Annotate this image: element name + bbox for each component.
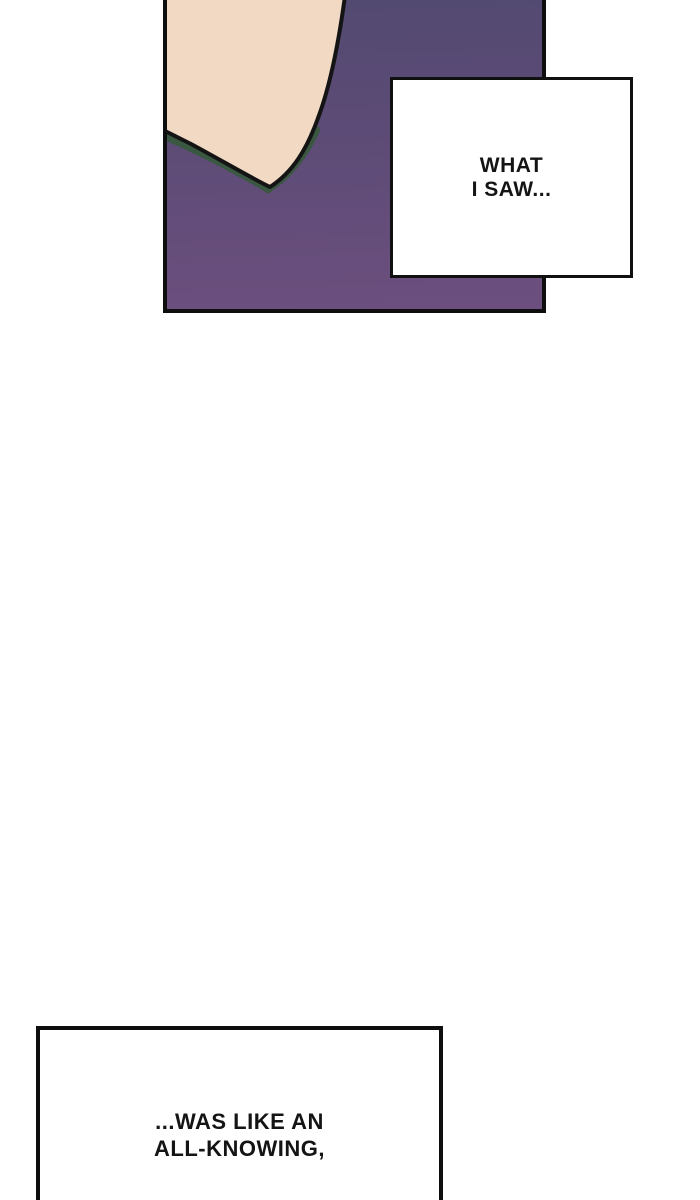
skin-shape: [167, 0, 345, 187]
caption-top-line1: WHAT: [480, 154, 543, 178]
comic-page: { "comic_page": { "paper_color": "#fffff…: [0, 0, 700, 1200]
caption-box-top: WHAT I SAW...: [390, 77, 633, 278]
caption-bottom-text: ...WAS LIKE AN ALL-KNOWING,: [40, 1108, 439, 1162]
caption-top-line2: I SAW...: [472, 178, 552, 202]
caption-bottom-line2: ALL-KNOWING,: [40, 1135, 439, 1162]
comic-panel-bottom: ...WAS LIKE AN ALL-KNOWING,: [36, 1026, 443, 1200]
caption-bottom-line1: ...WAS LIKE AN: [40, 1108, 439, 1135]
